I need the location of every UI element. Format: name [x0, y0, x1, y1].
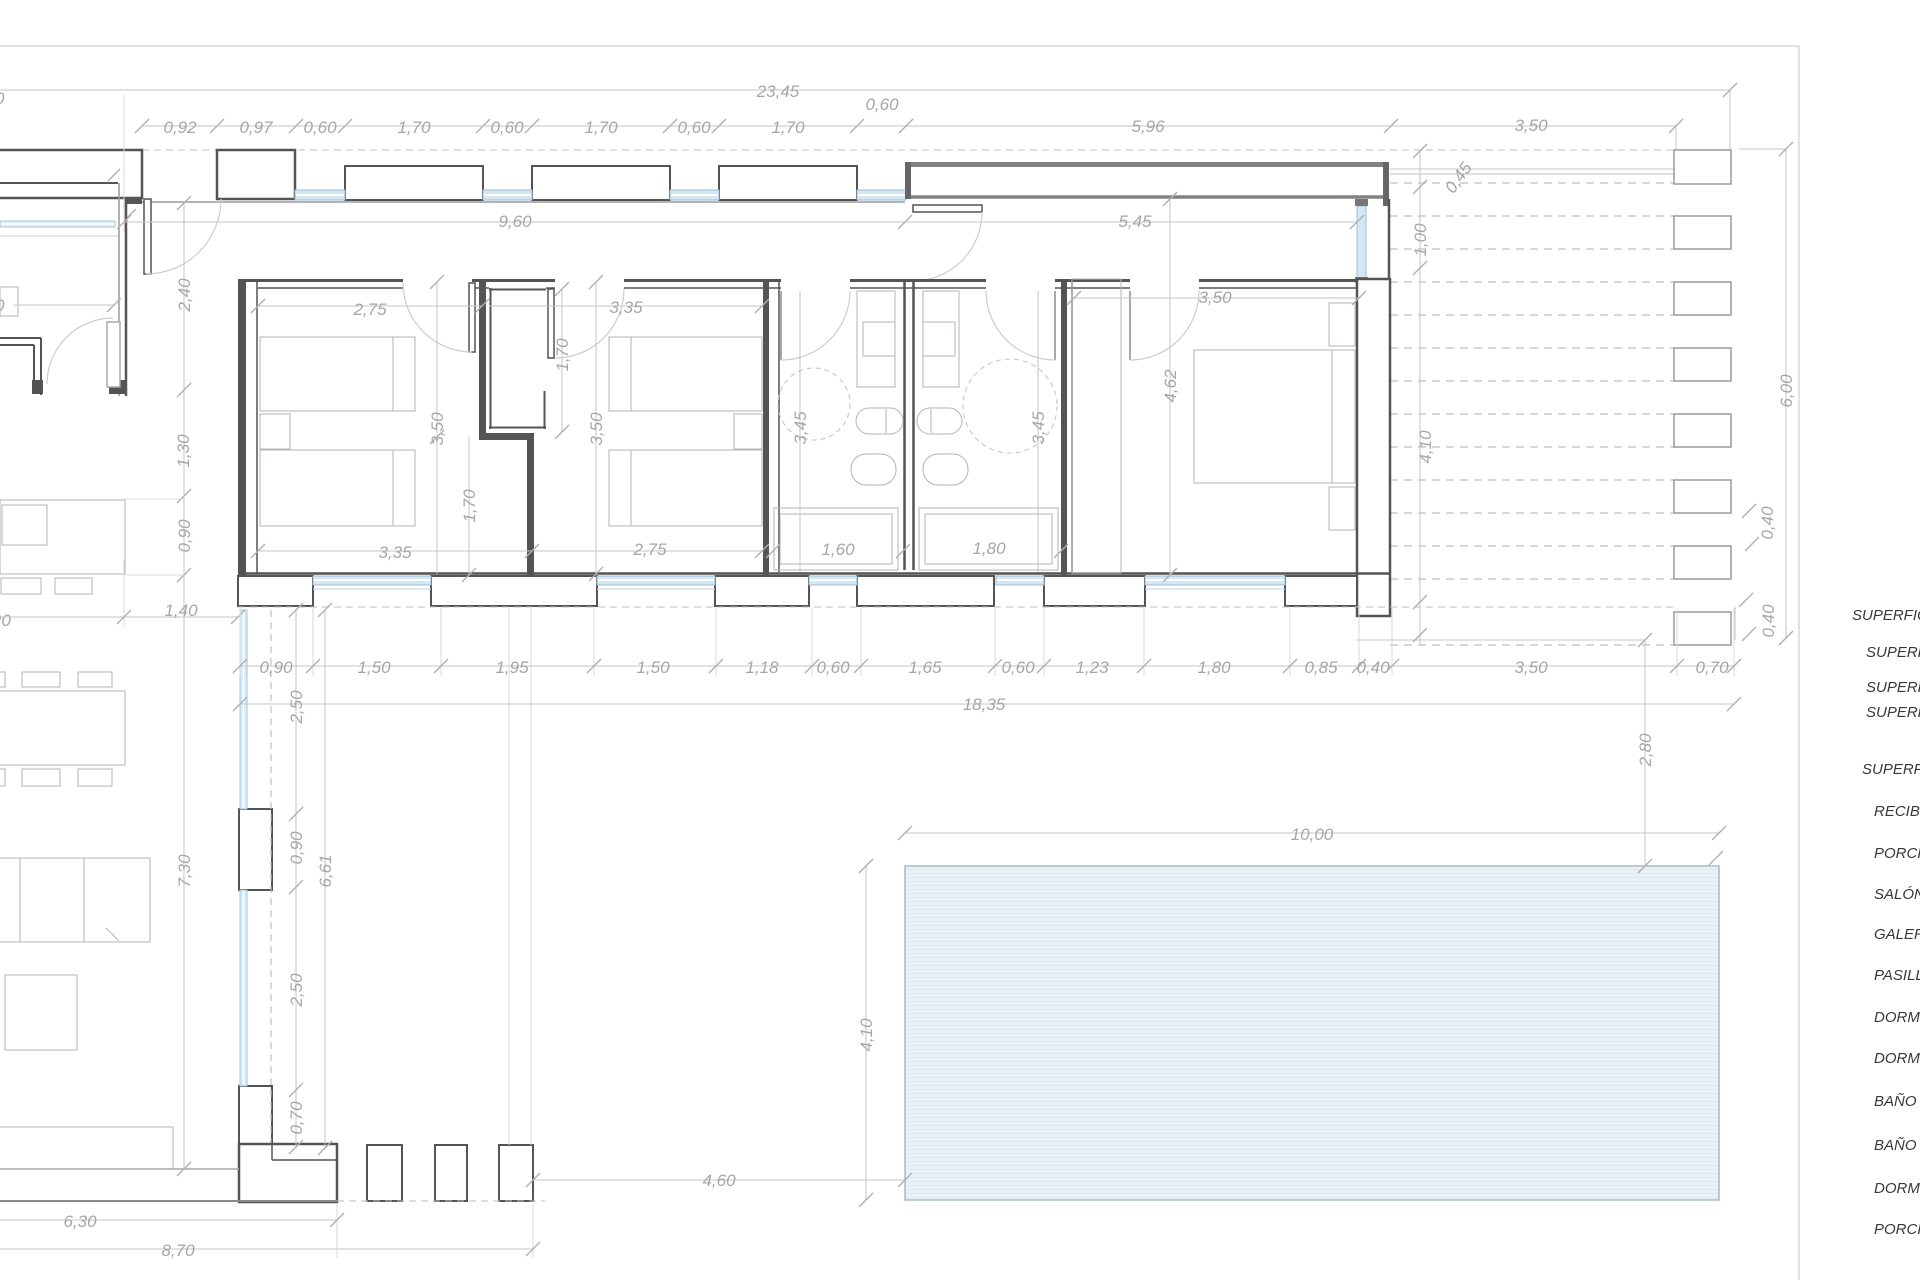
svg-text:3,50: 3,50	[1198, 288, 1232, 307]
svg-text:1,70: 1,70	[553, 338, 572, 372]
svg-text:18,35: 18,35	[963, 695, 1006, 714]
svg-text:BAÑO 1: BAÑO 1	[1874, 1093, 1920, 1110]
svg-text:1,70: 1,70	[460, 489, 479, 523]
svg-text:2,75: 2,75	[632, 540, 667, 559]
svg-text:BAÑO 2: BAÑO 2	[1874, 1137, 1920, 1154]
svg-text:2,75: 2,75	[352, 300, 387, 319]
svg-text:23,45: 23,45	[756, 82, 800, 101]
svg-text:3,50: 3,50	[428, 412, 447, 446]
svg-text:3,45: 3,45	[1029, 411, 1048, 445]
svg-text:SUPERFICIES UTILES: SUPERFICIES UTILES	[1862, 761, 1920, 778]
svg-text:PORCHE ENTRADA: PORCHE ENTRADA	[1874, 845, 1920, 862]
svg-text:RECIBIDOR: RECIBIDOR	[1874, 803, 1920, 820]
svg-text:4,62: 4,62	[1161, 369, 1180, 403]
svg-text:1,60: 1,60	[821, 540, 855, 559]
svg-text:0,60: 0,60	[865, 95, 899, 114]
svg-text:6,30: 6,30	[63, 1212, 97, 1231]
svg-text:0,90: 0,90	[259, 658, 293, 677]
svg-text:5,96: 5,96	[1131, 117, 1165, 136]
svg-text:6,00: 6,00	[1777, 374, 1796, 408]
svg-text:DORMITORIO 2: DORMITORIO 2	[1874, 1050, 1920, 1067]
svg-text:10,00: 10,00	[1291, 825, 1334, 844]
svg-text:2,80: 2,80	[1636, 733, 1655, 768]
svg-text:DORMITORIO 1: DORMITORIO 1	[1874, 1009, 1920, 1026]
svg-text:0,97: 0,97	[239, 118, 273, 137]
svg-text:DORMITORIO 3: DORMITORIO 3	[1874, 1180, 1920, 1197]
svg-text:20: 20	[0, 611, 11, 630]
svg-text:3,50: 3,50	[1514, 116, 1548, 135]
svg-text:4,10: 4,10	[857, 1018, 876, 1052]
svg-text:1,50: 1,50	[636, 658, 670, 677]
svg-text:1,23: 1,23	[1075, 658, 1109, 677]
svg-text:1,40: 1,40	[164, 601, 198, 620]
svg-text:0,60: 0,60	[677, 118, 711, 137]
svg-text:1,50: 1,50	[357, 658, 391, 677]
svg-text:1,18: 1,18	[745, 658, 779, 677]
svg-text:0,85: 0,85	[1304, 658, 1338, 677]
svg-text:PASILLO: PASILLO	[1874, 967, 1920, 984]
svg-text:5,45: 5,45	[1118, 212, 1152, 231]
svg-text:3,35: 3,35	[609, 298, 643, 317]
svg-text:0: 0	[0, 89, 5, 108]
svg-text:2,50: 2,50	[287, 690, 306, 725]
svg-text:8,70: 8,70	[161, 1241, 195, 1260]
svg-text:0,60: 0,60	[1001, 658, 1035, 677]
svg-text:SUPERFICIE CONSTRUIDA: SUPERFICIE CONSTRUIDA	[1866, 679, 1920, 696]
svg-text:0,40: 0,40	[1356, 658, 1390, 677]
svg-text:7,30: 7,30	[175, 854, 194, 888]
svg-text:0,40: 0,40	[1759, 604, 1778, 638]
svg-text:0: 0	[0, 296, 5, 315]
svg-text:4,60: 4,60	[702, 1171, 736, 1190]
svg-text:SUPERFICIE PORCHES: SUPERFICIE PORCHES	[1866, 704, 1920, 721]
svg-text:0,60: 0,60	[816, 658, 850, 677]
svg-text:1,30: 1,30	[174, 434, 193, 468]
svg-text:SALÓN-COMEDOR: SALÓN-COMEDOR	[1874, 886, 1920, 903]
svg-text:1,70: 1,70	[584, 118, 618, 137]
svg-text:SUPERFICIES CONSTRUIDAS: SUPERFICIES CONSTRUIDAS	[1852, 607, 1920, 624]
svg-text:0,90: 0,90	[175, 519, 194, 553]
svg-text:SUPERFICIE UTIL VIVIENDA: SUPERFICIE UTIL VIVIENDA	[1866, 644, 1920, 661]
svg-text:1,70: 1,70	[771, 118, 805, 137]
svg-text:0,60: 0,60	[303, 118, 337, 137]
svg-text:6,61: 6,61	[316, 854, 335, 887]
svg-text:1,80: 1,80	[972, 539, 1006, 558]
svg-text:4,10: 4,10	[1416, 430, 1435, 464]
svg-text:9,60: 9,60	[498, 212, 532, 231]
svg-text:0,90: 0,90	[287, 831, 306, 865]
svg-text:1,95: 1,95	[495, 658, 529, 677]
svg-text:GALERÍA: GALERÍA	[1874, 926, 1920, 943]
svg-text:3,50: 3,50	[1514, 658, 1548, 677]
svg-text:1,00: 1,00	[1411, 223, 1430, 257]
svg-text:3,35: 3,35	[378, 543, 412, 562]
svg-text:1,80: 1,80	[1197, 658, 1231, 677]
svg-text:1,65: 1,65	[908, 658, 942, 677]
svg-text:2,50: 2,50	[287, 973, 306, 1008]
svg-text:0,92: 0,92	[163, 118, 197, 137]
svg-text:3,50: 3,50	[587, 412, 606, 446]
svg-text:0,70: 0,70	[1695, 658, 1729, 677]
svg-text:0,60: 0,60	[490, 118, 524, 137]
svg-text:0,70: 0,70	[287, 1101, 306, 1135]
svg-text:0,40: 0,40	[1758, 506, 1777, 540]
svg-text:3,45: 3,45	[791, 411, 810, 445]
svg-text:1,70: 1,70	[397, 118, 431, 137]
svg-text:2,40: 2,40	[175, 278, 194, 313]
svg-text:PORCHE: PORCHE	[1874, 1221, 1920, 1238]
